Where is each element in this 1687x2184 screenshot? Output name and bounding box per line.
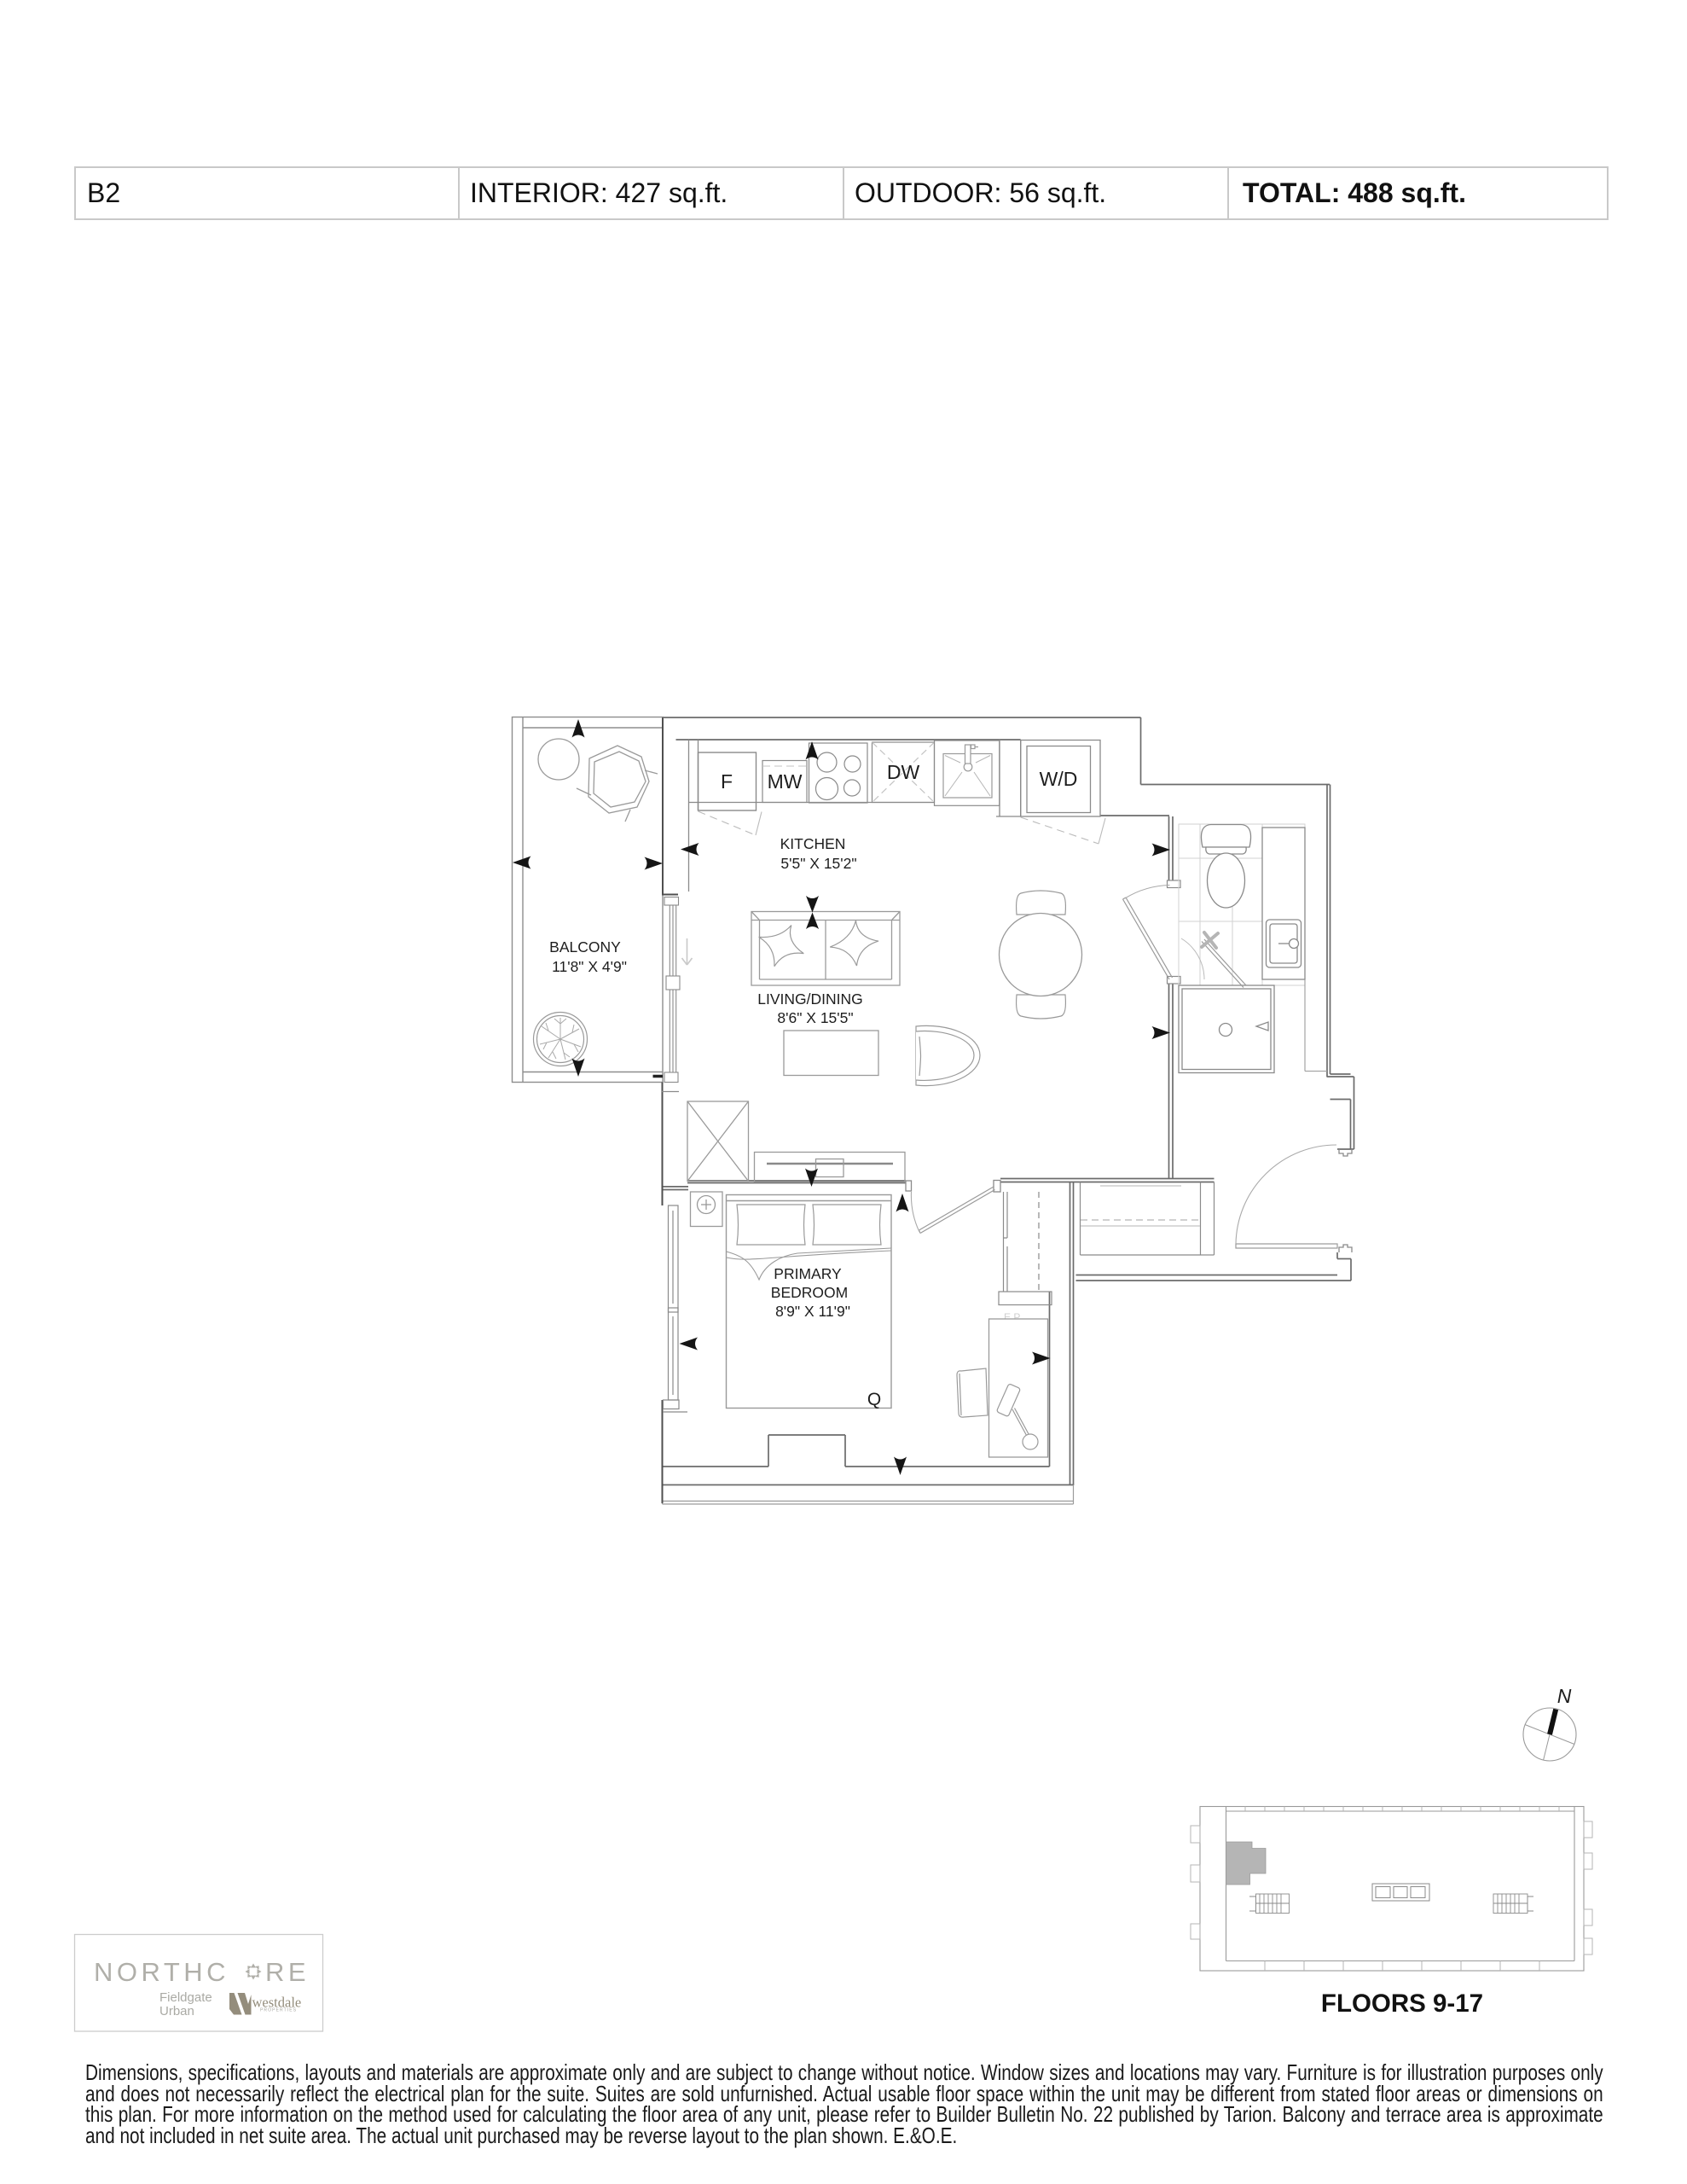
svg-text:FLOORS 9-17: FLOORS 9-17 [1321, 1989, 1483, 2018]
svg-text:5'5" X 15'2": 5'5" X 15'2" [780, 855, 856, 872]
svg-text:PROPERTIES: PROPERTIES [260, 2008, 297, 2013]
svg-text:F: F [721, 770, 733, 793]
svg-text:8'6" X 15'5": 8'6" X 15'5" [777, 1009, 853, 1026]
svg-text:MW: MW [768, 770, 803, 793]
svg-text:RE: RE [265, 1957, 310, 1987]
svg-text:Fieldgate: Fieldgate [159, 1990, 212, 2005]
svg-text:PRIMARY: PRIMARY [774, 1265, 842, 1282]
svg-text:KITCHEN: KITCHEN [780, 835, 846, 852]
svg-text:DW: DW [887, 761, 920, 783]
svg-text:BEDROOM: BEDROOM [771, 1284, 848, 1301]
svg-text:N: N [1557, 1685, 1572, 1707]
svg-text:11'8" X 4'9": 11'8" X 4'9" [552, 958, 627, 975]
svg-text:LIVING/DINING: LIVING/DINING [757, 990, 863, 1008]
svg-text:Q: Q [867, 1390, 881, 1409]
svg-text:Urban: Urban [159, 2004, 194, 2018]
svg-text:8'9" X 11'9": 8'9" X 11'9" [775, 1303, 850, 1320]
svg-text:BALCONY: BALCONY [549, 938, 621, 955]
svg-text:W/D: W/D [1040, 768, 1078, 790]
svg-text:NORTHC: NORTHC [94, 1957, 229, 1987]
